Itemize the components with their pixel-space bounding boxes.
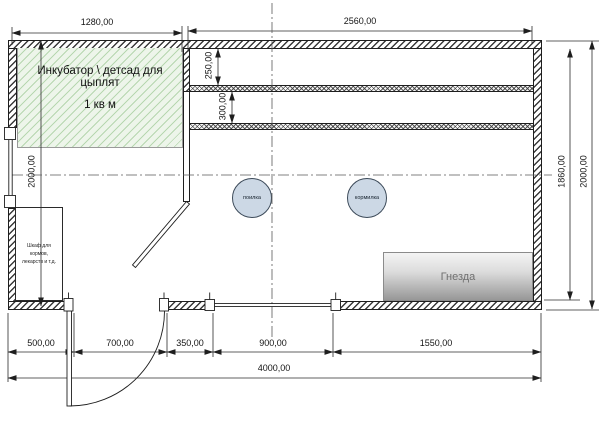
partition-wall-hatched-top [183, 48, 190, 92]
bottom-wall-right [340, 301, 542, 310]
roost-strip-1 [190, 85, 533, 92]
incubator-area-size: 1 кв м [17, 99, 183, 111]
feed-cabinet-label: Шкаф для кормов, лекарств и т.д. [22, 242, 56, 266]
roost-strip-2 [190, 123, 533, 130]
entrance-door-jamb-left [64, 299, 73, 312]
left-window-jamb-top [5, 128, 16, 140]
entrance-door-swing-arc [70, 311, 165, 406]
feeder-circle: кормилка [347, 178, 387, 218]
dim-bottom-500: 500,00 [11, 339, 71, 348]
right-wall [533, 48, 542, 302]
incubator-area [17, 48, 183, 148]
feed-cabinet: Шкаф для кормов, лекарств и т.д. [15, 207, 63, 301]
dim-bottom-1550: 1550,00 [406, 339, 466, 348]
dim-bottom-900: 900,00 [243, 339, 303, 348]
dim-bottom-4000: 4000,00 [244, 364, 304, 373]
dim-bottom-350: 350,00 [160, 339, 220, 348]
left-window-jamb-bottom [5, 196, 16, 208]
dim-left-2000: 2000,00 [28, 142, 37, 202]
drinker-circle: поилка [232, 178, 272, 218]
floor-plan-canvas: Инкубатор \ детсад для цыплят 1 кв м Шка… [0, 0, 600, 431]
bottom-wall-left [8, 301, 65, 310]
nests-box: Гнезда [383, 252, 533, 301]
dim-right-2000: 2000,00 [580, 142, 589, 202]
dim-roost-300: 300,00 [219, 77, 228, 137]
dim-top-2560: 2560,00 [320, 17, 400, 26]
left-wall-upper [8, 48, 17, 128]
bottom-wall-mid [168, 301, 206, 310]
feeder-label: кормилка [355, 195, 379, 201]
dim-bottom-700: 700,00 [90, 339, 150, 348]
dim-roost-250: 250,00 [205, 36, 214, 96]
bottom-window-jamb-left [205, 300, 215, 311]
drinker-label: поилка [243, 195, 261, 201]
dim-right-1860: 1860,00 [558, 142, 567, 202]
nests-label: Гнезда [441, 271, 476, 283]
partition-door-leaf [133, 202, 190, 268]
entrance-door-leaf [67, 311, 72, 406]
incubator-title: Инкубатор \ детсад для цыплят [17, 65, 183, 89]
dim-top-1280: 1280,00 [57, 18, 137, 27]
